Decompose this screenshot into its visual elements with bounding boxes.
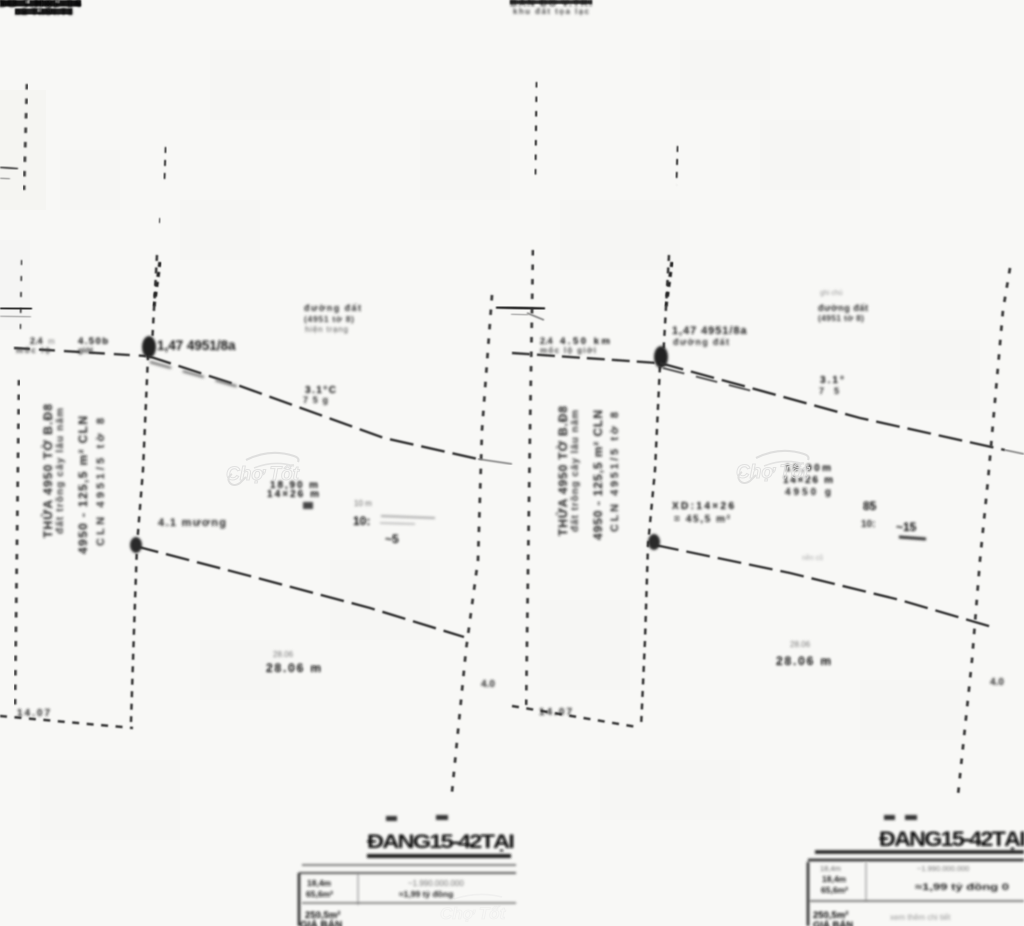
svg-text:đường đất: đường đất: [818, 303, 868, 313]
svg-text:nền cũ: nền cũ: [802, 553, 823, 562]
svg-text:~1.990.000.000: ~1.990.000.000: [408, 879, 464, 888]
svg-text:(4951 tờ 8): (4951 tờ 8): [818, 313, 864, 323]
svg-text:18,4m: 18,4m: [307, 878, 332, 888]
svg-text:4.0: 4.0: [481, 679, 495, 690]
svg-text:GIÁ BÁN: GIÁ BÁN: [813, 920, 853, 926]
svg-text:14.07: 14.07: [17, 708, 50, 719]
svg-text:4.0: 4.0: [990, 677, 1004, 688]
svg-text:Chợ Tốt: Chợ Tốt: [226, 464, 300, 485]
svg-text:xem thêm chi tiết: xem thêm chi tiết: [890, 913, 951, 922]
svg-text:mốc lộ: mốc lộ: [16, 346, 50, 355]
svg-text:28.06: 28.06: [790, 640, 811, 649]
svg-text:10:: 10:: [353, 514, 370, 528]
svg-text:THỬA 4950 TỜ B.Đ8: THỬA 4950 TỜ B.Đ8: [555, 406, 570, 536]
svg-text:~5: ~5: [385, 532, 399, 546]
svg-text:2.4: 2.4: [30, 336, 43, 346]
svg-text:CLN 4951/5 tờ 8: CLN 4951/5 tờ 8: [609, 412, 621, 532]
svg-text:~1.990.000.000: ~1.990.000.000: [917, 864, 969, 873]
svg-text:18,4m: 18,4m: [822, 874, 847, 884]
svg-text:1,47 4951/8a: 1,47 4951/8a: [672, 325, 747, 337]
svg-text:18,4m: 18,4m: [820, 864, 841, 873]
svg-text:10:: 10:: [861, 519, 875, 530]
svg-text:28.06 m: 28.06 m: [266, 661, 321, 675]
svg-text:1,47 4951/8a: 1,47 4951/8a: [157, 338, 236, 353]
svg-text:3.1°: 3.1°: [820, 375, 844, 386]
svg-text:28.06 m: 28.06 m: [776, 654, 831, 668]
svg-text:14×26 m: 14×26 m: [267, 489, 319, 500]
svg-text:4.1 mương: 4.1 mương: [158, 517, 226, 529]
svg-text:65,6m²: 65,6m²: [306, 889, 333, 899]
svg-text:28.06: 28.06: [273, 650, 294, 659]
svg-text:CLN 4951/5 tờ 8: CLN 4951/5 tờ 8: [95, 418, 107, 546]
svg-text:4950 g: 4950 g: [785, 487, 831, 498]
svg-text:≈1,99 tỷ đồng: ≈1,99 tỷ đồng: [399, 889, 453, 899]
svg-text:XD:14×26: XD:14×26: [672, 501, 734, 512]
svg-text:75g: 75g: [303, 395, 328, 405]
svg-text:(4951 tờ 8): (4951 tờ 8): [304, 314, 354, 324]
svg-text:mốc lộ giới: mốc lộ giới: [540, 346, 596, 355]
svg-text:giới: giới: [78, 346, 93, 355]
svg-text:ĐANG15-42TẠI: ĐANG15-42TẠI: [367, 832, 515, 853]
svg-text:THỬA 4950 TỜ B.Đ8: THỬA 4950 TỜ B.Đ8: [40, 404, 55, 538]
svg-text:đường đất: đường đất: [304, 303, 361, 313]
svg-text:ghi chú: ghi chú: [820, 290, 843, 297]
svg-text:đất trồng cây lâu năm: đất trồng cây lâu năm: [569, 410, 581, 532]
svg-text:khu đất tọa lạc: khu đất tọa lạc: [513, 7, 590, 16]
svg-text:~15: ~15: [896, 520, 917, 534]
svg-text:≈1,99 tỷ đồng 0: ≈1,99 tỷ đồng 0: [915, 882, 1009, 893]
svg-text:m: m: [48, 337, 55, 346]
svg-text:14.07: 14.07: [539, 707, 572, 718]
svg-text:đường đất: đường đất: [673, 337, 729, 347]
svg-text:Chợ Tốt: Chợ Tốt: [440, 904, 507, 923]
svg-text:10 m: 10 m: [354, 499, 372, 508]
svg-text:Chợ Tốt: Chợ Tốt: [736, 462, 810, 483]
svg-text:4950 - 125,5 m² CLN: 4950 - 125,5 m² CLN: [76, 416, 90, 554]
svg-text:85: 85: [863, 499, 877, 513]
svg-text:= 45,5 m²: = 45,5 m²: [674, 514, 731, 525]
svg-text:65,6m²: 65,6m²: [821, 885, 848, 895]
svg-text:hiện trạng: hiện trạng: [305, 325, 348, 334]
svg-text:2.4: 2.4: [540, 336, 553, 346]
svg-text:đất trồng cây lâu năm: đất trồng cây lâu năm: [54, 408, 66, 534]
svg-text:4950 - 125,5 m² CLN: 4950 - 125,5 m² CLN: [591, 410, 605, 540]
svg-text:GIÁ BÁN: GIÁ BÁN: [300, 918, 342, 926]
svg-text:75: 75: [819, 386, 839, 396]
svg-text:3.1°C: 3.1°C: [305, 385, 336, 396]
svg-text:ĐANG15-42TẠI: ĐANG15-42TẠI: [879, 828, 1024, 851]
